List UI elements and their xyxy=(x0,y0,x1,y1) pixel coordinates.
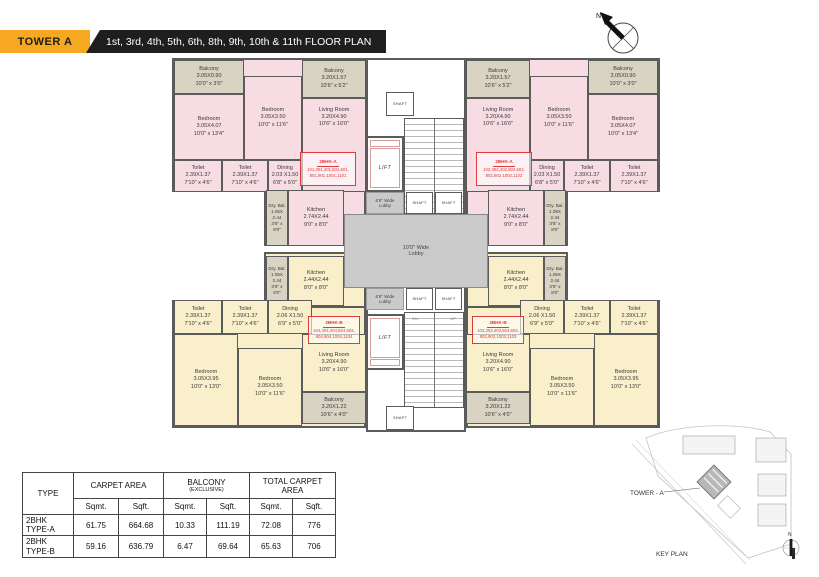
room-name: Toilet xyxy=(581,306,594,313)
dry-balcony: Dry. Bal. 1.05X 2.44 3'6" x 8'0" xyxy=(266,256,288,306)
side-lobby-top: 6'6" Wide Lobby xyxy=(366,192,404,214)
room-name: Balcony xyxy=(488,397,508,404)
kitchen: Kitchen 2.74X2.44 9'0" x 8'0" xyxy=(288,190,344,246)
room-name: Toilet xyxy=(192,165,205,172)
area-table: TYPE CARPET AREA BALCONY (EXCLUSIVE) TOT… xyxy=(22,472,336,558)
room-dim-m: 2.39X1.37 xyxy=(621,313,646,320)
shaft-label: SHAFT xyxy=(393,101,407,106)
dining: Dining 2.03 X1.50 6'8" x 5'0" xyxy=(530,160,564,192)
room-dim-ft: 9'0" x 8'0" xyxy=(304,222,328,229)
bedroom: Bedroom 3.05X3.50 10'0" x 11'6" xyxy=(530,348,594,426)
bedroom: Bedroom 3.05X3.50 10'0" x 11'6" xyxy=(238,348,302,426)
room-name: Toilet xyxy=(628,165,641,172)
north-n-label: N xyxy=(788,532,792,538)
toilet: Toilet 2.39X1.37 7'10" x 4'6" xyxy=(564,160,610,192)
room-name: Balcony xyxy=(613,66,633,73)
shaft-label: SHAFT xyxy=(412,296,426,301)
balcony-sqmt: 10.33 xyxy=(164,515,207,536)
col-total: TOTAL CARPET AREA xyxy=(250,473,336,499)
room-dim-ft: 10'0" x 11'6" xyxy=(544,122,574,129)
col-carpet-area: CARPET AREA xyxy=(74,473,164,499)
col-balcony: BALCONY (EXCLUSIVE) xyxy=(164,473,250,499)
flat-info-top-left: 2BHK-A 101,301,401,501,601, 801,901,1001… xyxy=(300,152,356,186)
room-dim-m: 3.05X4.07 xyxy=(196,123,221,130)
toilet: Toilet 2.39X1.37 7'10" x 4'6" xyxy=(564,300,610,334)
room-dim-m: 3.05X3.50 xyxy=(260,114,285,121)
room-dim-ft: 10'6" x 16'0" xyxy=(483,367,513,374)
sub-sqft: Sqft. xyxy=(293,499,336,515)
sub-sqft: Sqft. xyxy=(119,499,164,515)
room-name: Bedroom xyxy=(195,369,217,376)
plan-title: 1st, 3rd, 4th, 5th, 6th, 8th, 9th, 10th … xyxy=(86,30,386,53)
tower-a-marker xyxy=(697,465,731,499)
room-dim-m: 3.20X4.90 xyxy=(321,359,346,366)
room-name: Toilet xyxy=(581,165,594,172)
shaft: SHAFT xyxy=(406,288,433,310)
room-dim-ft: 10'6" x 16'0" xyxy=(319,367,349,374)
dining: Dining 2.03 X1.50 6'8" x 5'0" xyxy=(268,160,302,192)
type-line1: 2BHK xyxy=(26,537,47,546)
key-plan: TOWER - A KEY PLAN N xyxy=(628,416,810,566)
room-name: Bedroom xyxy=(612,116,634,123)
room-dim-m: 2.39X1.37 xyxy=(574,172,599,179)
shaft-label: SHAFT xyxy=(441,200,455,205)
key-plan-north-icon: N xyxy=(783,532,799,556)
balcony: Balcony 3.05X0.90 10'0" x 3'0" xyxy=(588,60,658,94)
sub-sqmt: Sqmt. xyxy=(164,499,207,515)
carpet-sqft: 664.68 xyxy=(119,515,164,536)
bedroom: Bedroom 3.05X3.50 10'0" x 11'6" xyxy=(244,76,302,160)
room-dim-ft: 6'9" x 5'0" xyxy=(530,321,554,328)
room-dim-ft: 3'6" x 8'0" xyxy=(545,221,565,233)
balcony: Balcony 3.20X1.22 10'6" x 4'0" xyxy=(302,392,366,424)
flat-type: 2BHK-A xyxy=(317,159,338,166)
lift-label: LIFT xyxy=(379,165,391,171)
flat-numbers: 801,901,1001,1101 xyxy=(310,173,347,179)
lift: LIFT xyxy=(366,314,404,370)
room-dim-m: 3.20X1.22 xyxy=(321,404,346,411)
lift: LIFT xyxy=(366,136,404,192)
room-name: Bedroom xyxy=(551,376,573,383)
shaft: SHAFT xyxy=(435,192,462,214)
bedroom: Bedroom 3.05X3.95 10'0" x 13'0" xyxy=(174,334,238,426)
room-dim-m: 3.05X3.50 xyxy=(549,383,574,390)
room-dim-m: 1.05X 2.44 xyxy=(267,272,287,284)
flat-numbers: 803,903,1003,1103 xyxy=(480,334,517,340)
room-dim-m: 3.05X0.90 xyxy=(196,73,221,80)
room-name: Balcony xyxy=(488,68,508,75)
room-name: Dining xyxy=(539,165,555,172)
room-dim-m: 3.05X3.95 xyxy=(193,376,218,383)
col-balcony-sub: (EXCLUSIVE) xyxy=(166,487,247,493)
room-dim-m: 2.74X2.44 xyxy=(503,214,528,221)
toilet: Toilet 2.39X1.37 7'10" x 4'6" xyxy=(222,160,268,192)
table-row-type-a: 2BHK TYPE-A 61.75 664.68 10.33 111.19 72… xyxy=(23,515,336,536)
staircase-bottom: DN UP xyxy=(404,312,464,408)
room-dim-m: 2.74X2.44 xyxy=(303,214,328,221)
lift-label: LIFT xyxy=(379,335,391,341)
room-dim-ft: 10'6" x 16'0" xyxy=(483,121,513,128)
room-dim-ft: 6'8" x 5'0" xyxy=(535,180,559,187)
flat-info-bottom-right: 2BHK-B 103,303,403,503,603, 803,903,1003… xyxy=(472,316,524,344)
carpet-sqft: 636.79 xyxy=(119,536,164,557)
shaft: SHAFT xyxy=(406,192,433,214)
flat-info-top-right: 2BHK-A 102,302,402,502,602, 802,902,1002… xyxy=(476,152,532,186)
room-dim-ft: 3'6" x 8'0" xyxy=(267,221,287,233)
flat-type: 2BHK-B xyxy=(487,320,508,327)
north-n-label: N xyxy=(596,13,601,20)
room-name: Bedroom xyxy=(262,107,284,114)
toilet: Toilet 2.39X1.37 7'10" x 4'6" xyxy=(174,160,222,192)
dining: Dining 2.06 X1.50 6'9" x 5'0" xyxy=(520,300,564,334)
bedroom: Bedroom 3.05X4.07 10'0" x 13'4" xyxy=(588,94,658,160)
room-dim-m: 2.06 X1.50 xyxy=(529,313,556,320)
room-dim-ft: 7'10" x 4'6" xyxy=(184,321,211,328)
floor-plan-page: TOWER A 1st, 3rd, 4th, 5th, 6th, 8th, 9t… xyxy=(0,0,819,577)
balcony: Balcony 3.20X1.57 10'6" x 5'2" xyxy=(302,60,366,98)
sub-sqmt: Sqmt. xyxy=(250,499,293,515)
kitchen: Kitchen 2.74X2.44 9'0" x 8'0" xyxy=(488,190,544,246)
room-dim-m: 2.03 X1.50 xyxy=(272,172,299,179)
room-dim-m: 3.05X4.07 xyxy=(610,123,635,130)
room-dim-ft: 10'0" x 13'0" xyxy=(191,384,221,391)
balcony-sqft: 111.19 xyxy=(207,515,250,536)
room-name: Balcony xyxy=(324,397,344,404)
room-dim-m: 3.05X0.90 xyxy=(610,73,635,80)
kitchen: Kitchen 2.44X2.44 8'0" x 8'0" xyxy=(288,256,344,306)
room-dim-ft: 10'0" x 13'4" xyxy=(608,131,638,138)
room-dim-m: 3.20X1.22 xyxy=(485,404,510,411)
balcony: Balcony 3.20X1.22 10'6" x 4'0" xyxy=(466,392,530,424)
key-plan-caption: KEY PLAN xyxy=(656,551,688,558)
room-dim-ft: 6'8" x 5'0" xyxy=(273,180,297,187)
balcony-sqft: 69.64 xyxy=(207,536,250,557)
room-dim-m: 2.39X1.37 xyxy=(185,172,210,179)
room-dim-ft: 8'0" x 8'0" xyxy=(504,285,528,292)
bedroom: Bedroom 3.05X3.50 10'0" x 11'6" xyxy=(530,76,588,160)
lift-door xyxy=(370,359,400,366)
stairs-dn-label: DN xyxy=(412,316,418,321)
lobby-label: Lobby xyxy=(409,251,424,257)
shaft: SHAFT xyxy=(435,288,462,310)
flat-numbers: 802,902,1002,1102 xyxy=(486,173,523,179)
room-dim-ft: 10'0" x 13'0" xyxy=(611,384,641,391)
room-dim-m: 2.39X1.37 xyxy=(232,172,257,179)
room-name: Balcony xyxy=(324,68,344,75)
sub-sqmt: Sqmt. xyxy=(74,499,119,515)
toilet: Toilet 2.39X1.37 7'10" x 4'6" xyxy=(610,300,658,334)
room-dim-ft: 10'6" x 4'0" xyxy=(320,412,347,419)
tower-tag: TOWER A xyxy=(0,30,90,53)
room-name: Kitchen xyxy=(507,270,525,277)
lift-cab: LIFT xyxy=(370,148,400,188)
room-dim-m: 3.05X3.50 xyxy=(257,383,282,390)
flat-type: 2BHK-A xyxy=(493,159,514,166)
room-name: Dining xyxy=(534,306,550,313)
room-dim-m: 1.05X 2.44 xyxy=(545,209,565,221)
room-name: Kitchen xyxy=(307,270,325,277)
room-name: Kitchen xyxy=(507,207,525,214)
stairs-up-label: UP xyxy=(450,316,456,321)
room-dim-m: 3.05X3.95 xyxy=(613,376,638,383)
type-line1: 2BHK xyxy=(26,516,47,525)
room-name: Bedroom xyxy=(548,107,570,114)
room-name: Living Room xyxy=(483,352,514,359)
room-dim-ft: 9'0" x 8'0" xyxy=(504,222,528,229)
room-name: Balcony xyxy=(199,66,219,73)
room-dim-ft: 7'10" x 4'6" xyxy=(620,321,647,328)
north-arrow-icon: N xyxy=(596,8,646,60)
room-name: Bedroom xyxy=(198,116,220,123)
room-name: Living Room xyxy=(483,107,514,114)
room-name: Dining xyxy=(277,165,293,172)
room-dim-ft: 3'6" x 8'0" xyxy=(267,284,287,296)
shaft: SHAFT xyxy=(386,92,414,116)
room-name: Bedroom xyxy=(615,369,637,376)
flat-info-bottom-left: 2BHK-B 104,304,404,504,604, 804,904,1004… xyxy=(308,316,360,344)
room-dim-ft: 10'0" x 11'6" xyxy=(255,391,285,398)
room-name: Living Room xyxy=(319,352,350,359)
room-dim-ft: 10'0" x 11'6" xyxy=(258,122,288,129)
carpet-sqmt: 61.75 xyxy=(74,515,119,536)
type-cell: 2BHK TYPE-B xyxy=(23,536,74,557)
flat-numbers: 804,904,1004,1104 xyxy=(316,334,353,340)
toilet: Toilet 2.39X1.37 7'10" x 4'6" xyxy=(174,300,222,334)
room-dim-ft: 8'0" x 8'0" xyxy=(304,285,328,292)
shaft-label: SHAFT xyxy=(412,200,426,205)
room-name: Bedroom xyxy=(259,376,281,383)
room-name: Living Room xyxy=(319,107,350,114)
total-sqft: 776 xyxy=(293,515,336,536)
table-row-type-b: 2BHK TYPE-B 59.16 636.79 6.47 69.64 65.6… xyxy=(23,536,336,557)
room-dim-m: 2.44X2.44 xyxy=(303,277,328,284)
balcony-sqmt: 6.47 xyxy=(164,536,207,557)
room-dim-ft: 10'6" x 5'2" xyxy=(320,83,347,90)
flat-type: 2BHK-B xyxy=(323,320,344,327)
room-dim-ft: 7'10" x 4'6" xyxy=(231,321,258,328)
room-dim-ft: 10'0" x 3'0" xyxy=(195,81,222,88)
carpet-sqmt: 59.16 xyxy=(74,536,119,557)
central-lobby: 10'0" Wide Lobby xyxy=(344,214,488,288)
room-dim-m: 1.05X 2.44 xyxy=(545,272,565,284)
room-dim-m: 3.05X3.50 xyxy=(546,114,571,121)
room-dim-m: 1.05X 2.44 xyxy=(267,209,287,221)
shaft: SHAFT xyxy=(386,406,414,430)
key-plan-tower-label: TOWER - A xyxy=(630,490,664,497)
room-dim-ft: 10'6" x 16'0" xyxy=(319,121,349,128)
room-dim-ft: 10'0" x 13'4" xyxy=(194,131,224,138)
room-dim-m: 3.20X1.57 xyxy=(321,75,346,82)
room-name: Toilet xyxy=(192,306,205,313)
dry-balcony: Dry. Bal. 1.05X 2.44 3'6" x 8'0" xyxy=(266,190,288,246)
room-name: Kitchen xyxy=(307,207,325,214)
corner-mark xyxy=(792,548,795,559)
room-dim-m: 2.39X1.37 xyxy=(621,172,646,179)
shaft-label: SHAFT xyxy=(393,415,407,420)
toilet: Toilet 2.39X1.37 7'10" x 4'6" xyxy=(222,300,268,334)
room-dim-ft: 7'10" x 4'6" xyxy=(620,180,647,187)
side-lobby-bottom: 6'6" Wide Lobby xyxy=(366,288,404,310)
type-line2: TYPE-B xyxy=(26,547,55,556)
type-line2: TYPE-A xyxy=(26,525,55,534)
room-name: Toilet xyxy=(239,306,252,313)
room-dim-ft: 10'0" x 11'6" xyxy=(547,391,577,398)
shaft-label: SHAFT xyxy=(441,296,455,301)
col-balcony-title: BALCONY xyxy=(187,478,225,487)
total-sqmt: 72.08 xyxy=(250,515,293,536)
room-dim-m: 2.39X1.37 xyxy=(185,313,210,320)
type-cell: 2BHK TYPE-A xyxy=(23,515,74,536)
sub-sqft: Sqft. xyxy=(207,499,250,515)
balcony: Balcony 3.20X1.57 10'6" x 5'2" xyxy=(466,60,530,98)
room-name: Dining xyxy=(282,306,298,313)
room-dim-ft: 10'6" x 5'2" xyxy=(484,83,511,90)
dry-balcony: Dry. Bal. 1.05X 2.44 3'6" x 8'0" xyxy=(544,190,566,246)
room-dim-ft: 7'10" x 4'6" xyxy=(573,321,600,328)
toilet: Toilet 2.39X1.37 7'10" x 4'6" xyxy=(610,160,658,192)
kitchen: Kitchen 2.44X2.44 8'0" x 8'0" xyxy=(488,256,544,306)
room-dim-ft: 3'6" x 8'0" xyxy=(545,284,565,296)
bedroom: Bedroom 3.05X3.95 10'0" x 13'0" xyxy=(594,334,658,426)
room-dim-m: 3.20X1.57 xyxy=(485,75,510,82)
room-dim-ft: 10'6" x 4'0" xyxy=(484,412,511,419)
room-dim-ft: 6'9" x 5'0" xyxy=(278,321,302,328)
room-dim-m: 2.39X1.37 xyxy=(232,313,257,320)
dining: Dining 2.06 X1.50 6'9" x 5'0" xyxy=(268,300,312,334)
room-dim-ft: 7'10" x 4'6" xyxy=(231,180,258,187)
room-dim-ft: 7'10" x 4'6" xyxy=(184,180,211,187)
room-dim-m: 2.44X2.44 xyxy=(503,277,528,284)
room-name: Toilet xyxy=(628,306,641,313)
dry-balcony: Dry. Bal. 1.05X 2.44 3'6" x 8'0" xyxy=(544,256,566,306)
room-dim-m: 3.20X4.90 xyxy=(485,359,510,366)
balcony: Balcony 3.05X0.90 10'0" x 3'0" xyxy=(174,60,244,94)
lobby-label: Lobby xyxy=(379,299,391,304)
stair-divider xyxy=(434,313,435,407)
room-dim-m: 3.20X4.90 xyxy=(485,114,510,121)
col-type: TYPE xyxy=(23,473,74,515)
room-dim-m: 3.20X4.90 xyxy=(321,114,346,121)
lift-door xyxy=(370,140,400,147)
room-name: Toilet xyxy=(239,165,252,172)
bedroom: Bedroom 3.05X4.07 10'0" x 13'4" xyxy=(174,94,244,160)
room-dim-m: 2.03 X1.50 xyxy=(534,172,561,179)
room-dim-m: 2.06 X1.50 xyxy=(277,313,304,320)
room-dim-ft: 10'0" x 3'0" xyxy=(609,81,636,88)
room-dim-ft: 7'10" x 4'6" xyxy=(573,180,600,187)
total-sqft: 706 xyxy=(293,536,336,557)
total-sqmt: 65.63 xyxy=(250,536,293,557)
room-dim-m: 2.39X1.37 xyxy=(574,313,599,320)
lobby-label: Lobby xyxy=(379,203,391,208)
lift-cab: LIFT xyxy=(370,318,400,358)
